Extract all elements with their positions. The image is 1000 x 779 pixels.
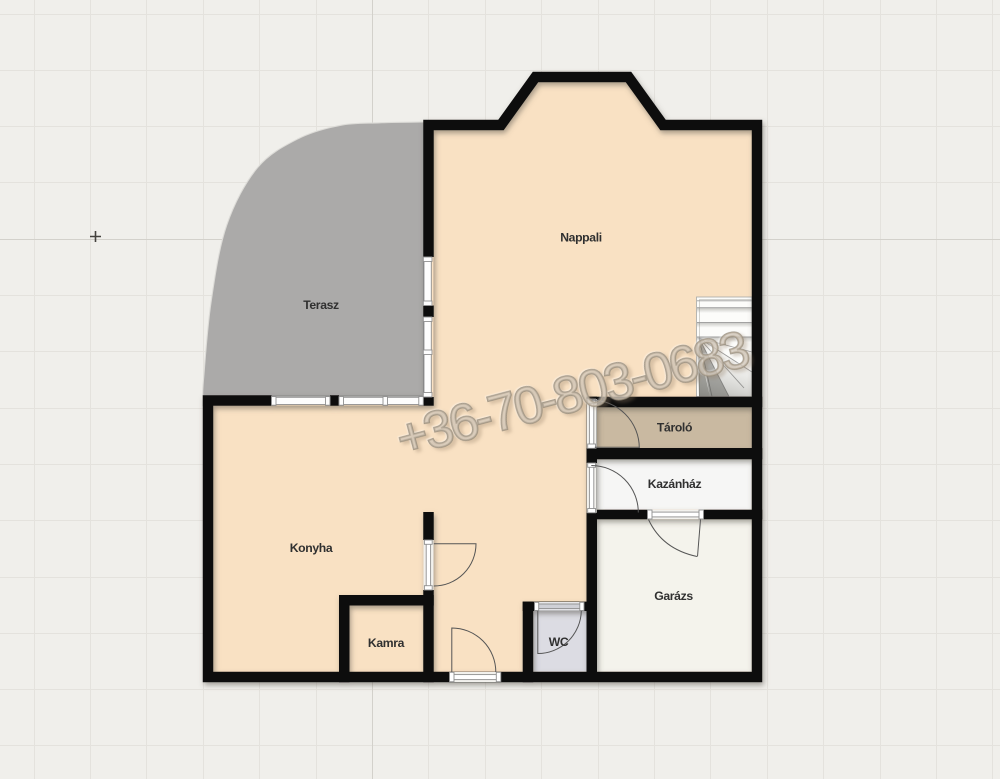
svg-text:Terasz: Terasz: [303, 298, 339, 312]
svg-text:Tároló: Tároló: [657, 421, 692, 435]
svg-text:Kamra: Kamra: [368, 636, 405, 650]
svg-text:WC: WC: [549, 635, 569, 649]
svg-text:Nappali: Nappali: [560, 231, 602, 245]
svg-text:Konyha: Konyha: [290, 541, 333, 555]
svg-text:Garázs: Garázs: [654, 589, 693, 603]
svg-text:Kazánház: Kazánház: [648, 477, 702, 491]
